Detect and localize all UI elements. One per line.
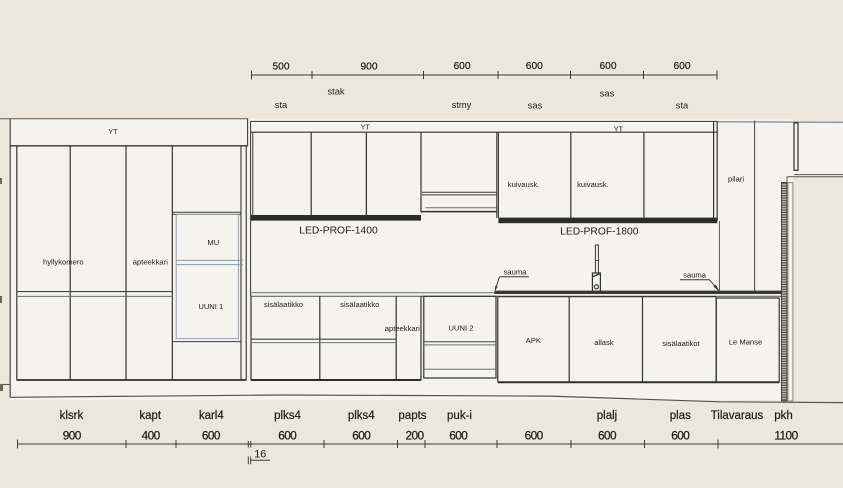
svg-text:stmy: stmy xyxy=(452,100,472,110)
svg-text:sas: sas xyxy=(528,101,543,111)
svg-text:UUNI 1: UUNI 1 xyxy=(198,302,223,311)
svg-text:plks4: plks4 xyxy=(348,410,375,422)
svg-text:600: 600 xyxy=(671,429,690,443)
svg-text:papts: papts xyxy=(398,410,426,422)
svg-text:Tilavaraus: Tilavaraus xyxy=(711,410,764,422)
svg-text:sisälaatikko: sisälaatikko xyxy=(340,300,379,309)
svg-text:sauma: sauma xyxy=(683,271,707,280)
svg-text:YT: YT xyxy=(108,127,118,136)
svg-text:900: 900 xyxy=(63,429,82,443)
svg-text:600: 600 xyxy=(449,429,468,443)
svg-text:sauma: sauma xyxy=(504,268,528,277)
svg-text:UUNI 2: UUNI 2 xyxy=(449,324,474,333)
svg-text:LED-PROF-1400: LED-PROF-1400 xyxy=(299,225,378,236)
svg-text:600: 600 xyxy=(202,429,221,443)
svg-text:pkh: pkh xyxy=(774,410,793,422)
svg-text:apteekkari: apteekkari xyxy=(133,257,168,266)
svg-text:600: 600 xyxy=(526,61,543,72)
svg-text:900: 900 xyxy=(361,62,378,73)
svg-text:sisälaatikko: sisälaatikko xyxy=(264,300,303,309)
svg-text:APK: APK xyxy=(526,336,541,345)
svg-text:YT: YT xyxy=(361,123,371,132)
svg-text:200: 200 xyxy=(405,429,424,443)
svg-text:YT: YT xyxy=(614,125,624,134)
svg-text:600: 600 xyxy=(674,61,691,72)
svg-text:16: 16 xyxy=(254,449,266,461)
svg-text:plas: plas xyxy=(670,410,691,422)
svg-text:500: 500 xyxy=(273,62,290,73)
svg-text:MU: MU xyxy=(207,238,219,247)
svg-text:Le Manse: Le Manse xyxy=(729,338,762,347)
svg-text:600: 600 xyxy=(525,429,544,443)
svg-text:plks4: plks4 xyxy=(274,410,301,422)
svg-text:sas: sas xyxy=(600,89,615,99)
svg-text:400: 400 xyxy=(142,429,161,443)
svg-text:stak: stak xyxy=(327,87,344,97)
svg-text:karl4: karl4 xyxy=(199,410,225,422)
svg-text:hyllykomero: hyllykomero xyxy=(43,257,84,266)
svg-text:kuivausk.: kuivausk. xyxy=(577,180,609,189)
svg-text:600: 600 xyxy=(454,61,471,72)
svg-text:sisälaatikot: sisälaatikot xyxy=(662,339,700,348)
svg-text:apteekkari: apteekkari xyxy=(385,324,420,333)
svg-text:1100: 1100 xyxy=(774,429,798,443)
svg-text:pilari: pilari xyxy=(728,175,744,184)
svg-text:600: 600 xyxy=(600,61,617,72)
svg-text:plalj: plalj xyxy=(597,410,617,422)
svg-text:kapt: kapt xyxy=(139,410,162,422)
svg-text:puk-i: puk-i xyxy=(447,410,472,422)
svg-text:sta: sta xyxy=(275,100,288,110)
svg-text:600: 600 xyxy=(278,429,297,443)
svg-text:LED-PROF-1800: LED-PROF-1800 xyxy=(560,227,639,238)
svg-text:klsrk: klsrk xyxy=(60,410,84,422)
svg-text:600: 600 xyxy=(352,429,371,443)
svg-text:kuivausk.: kuivausk. xyxy=(508,180,540,189)
svg-text:600: 600 xyxy=(598,429,617,443)
svg-text:sta: sta xyxy=(676,101,689,111)
svg-text:allask: allask xyxy=(594,338,614,347)
